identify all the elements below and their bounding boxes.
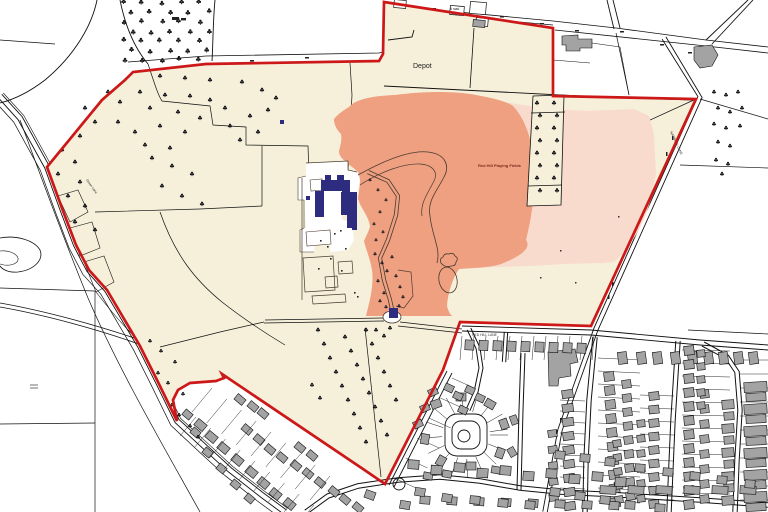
- svg-text:A road: A road: [450, 7, 459, 11]
- svg-text:Red Hill Playing Fields: Red Hill Playing Fields: [478, 163, 522, 168]
- svg-text:RED HILL LANE: RED HILL LANE: [472, 333, 498, 337]
- svg-text:Depot: Depot: [413, 63, 432, 70]
